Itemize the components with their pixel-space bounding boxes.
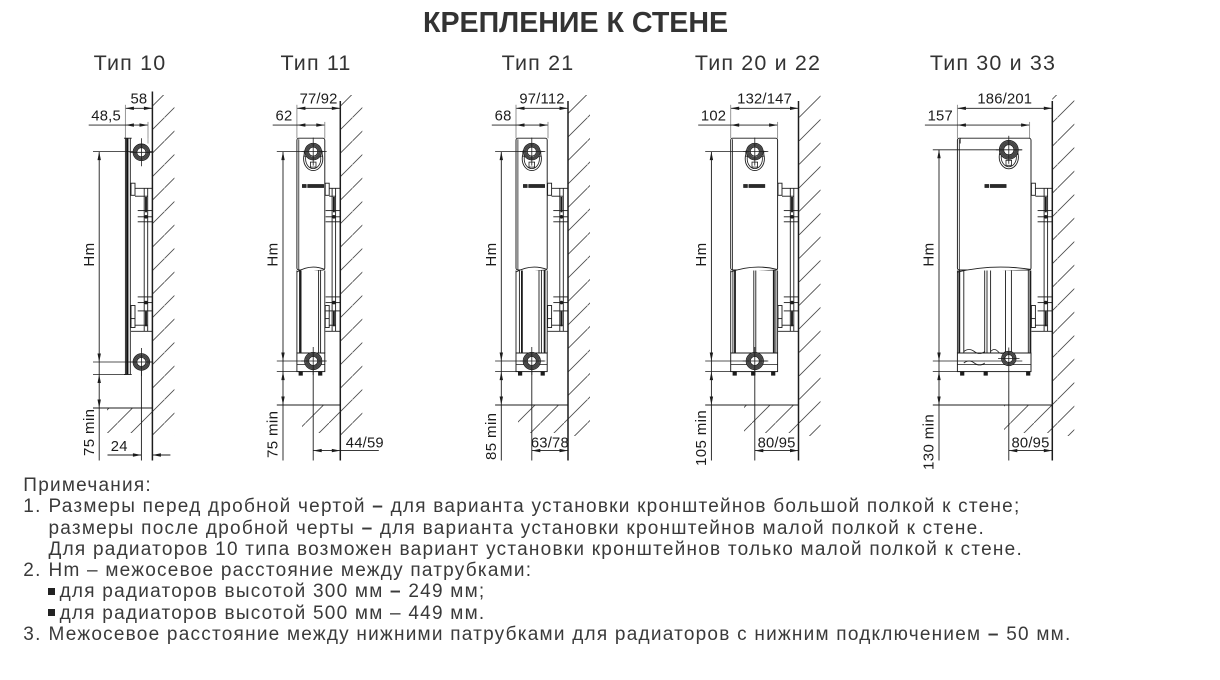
svg-text:186/201: 186/201 bbox=[977, 92, 1032, 108]
svg-text:132/147: 132/147 bbox=[737, 92, 792, 108]
svg-text:24: 24 bbox=[111, 439, 128, 455]
svg-text:48,5: 48,5 bbox=[91, 109, 121, 125]
svg-text:63/78: 63/78 bbox=[531, 436, 569, 452]
svg-text:Hm: Hm bbox=[483, 242, 500, 266]
svg-text:Hm: Hm bbox=[693, 242, 710, 266]
svg-text:77/92: 77/92 bbox=[300, 92, 338, 108]
svg-text:58: 58 bbox=[130, 92, 147, 108]
svg-text:75 min: 75 min bbox=[81, 409, 98, 456]
svg-text:44/59: 44/59 bbox=[346, 436, 384, 452]
svg-text:85 min: 85 min bbox=[483, 413, 500, 460]
svg-text:62: 62 bbox=[276, 109, 293, 125]
svg-text:Hm: Hm bbox=[265, 242, 282, 266]
svg-text:130 min: 130 min bbox=[921, 414, 938, 470]
svg-text:75 min: 75 min bbox=[265, 411, 282, 458]
svg-text:80/95: 80/95 bbox=[758, 436, 796, 452]
svg-text:Hm: Hm bbox=[81, 242, 98, 266]
svg-text:Hm: Hm bbox=[921, 242, 938, 266]
svg-text:68: 68 bbox=[495, 109, 512, 125]
svg-text:105 min: 105 min bbox=[693, 410, 710, 466]
svg-text:102: 102 bbox=[701, 109, 726, 125]
svg-text:157: 157 bbox=[928, 109, 953, 125]
svg-text:80/95: 80/95 bbox=[1011, 436, 1049, 452]
svg-text:97/112: 97/112 bbox=[519, 92, 564, 108]
